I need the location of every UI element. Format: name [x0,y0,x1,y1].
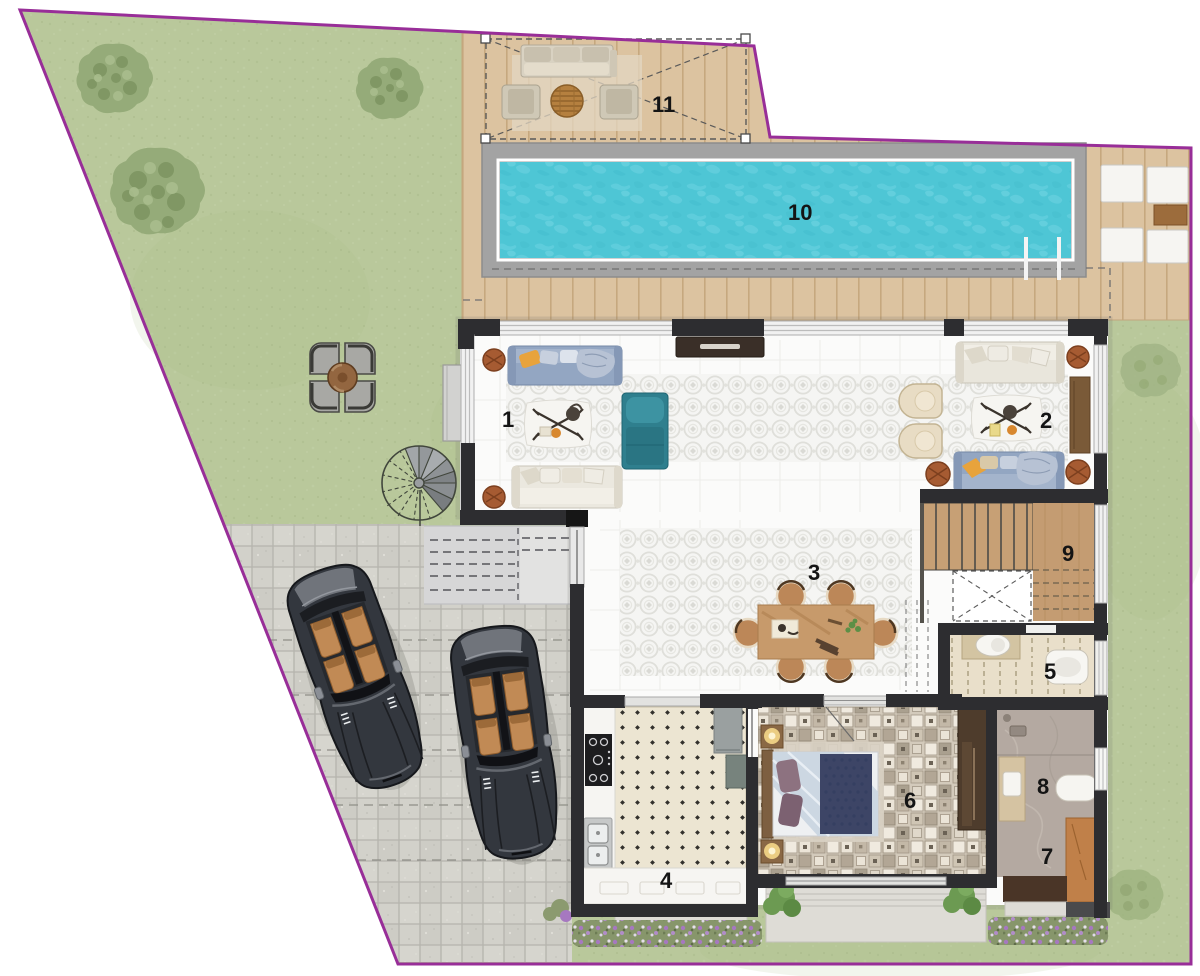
svg-text:5: 5 [1044,659,1056,684]
svg-text:6: 6 [904,788,916,813]
svg-text:9: 9 [1062,541,1074,566]
svg-text:3: 3 [808,560,820,585]
svg-text:8: 8 [1037,774,1049,799]
svg-text:11: 11 [652,92,675,117]
svg-text:2: 2 [1040,408,1052,433]
svg-text:1: 1 [502,407,514,432]
svg-text:4: 4 [660,868,673,893]
svg-text:10: 10 [788,200,812,225]
svg-text:7: 7 [1041,844,1053,869]
